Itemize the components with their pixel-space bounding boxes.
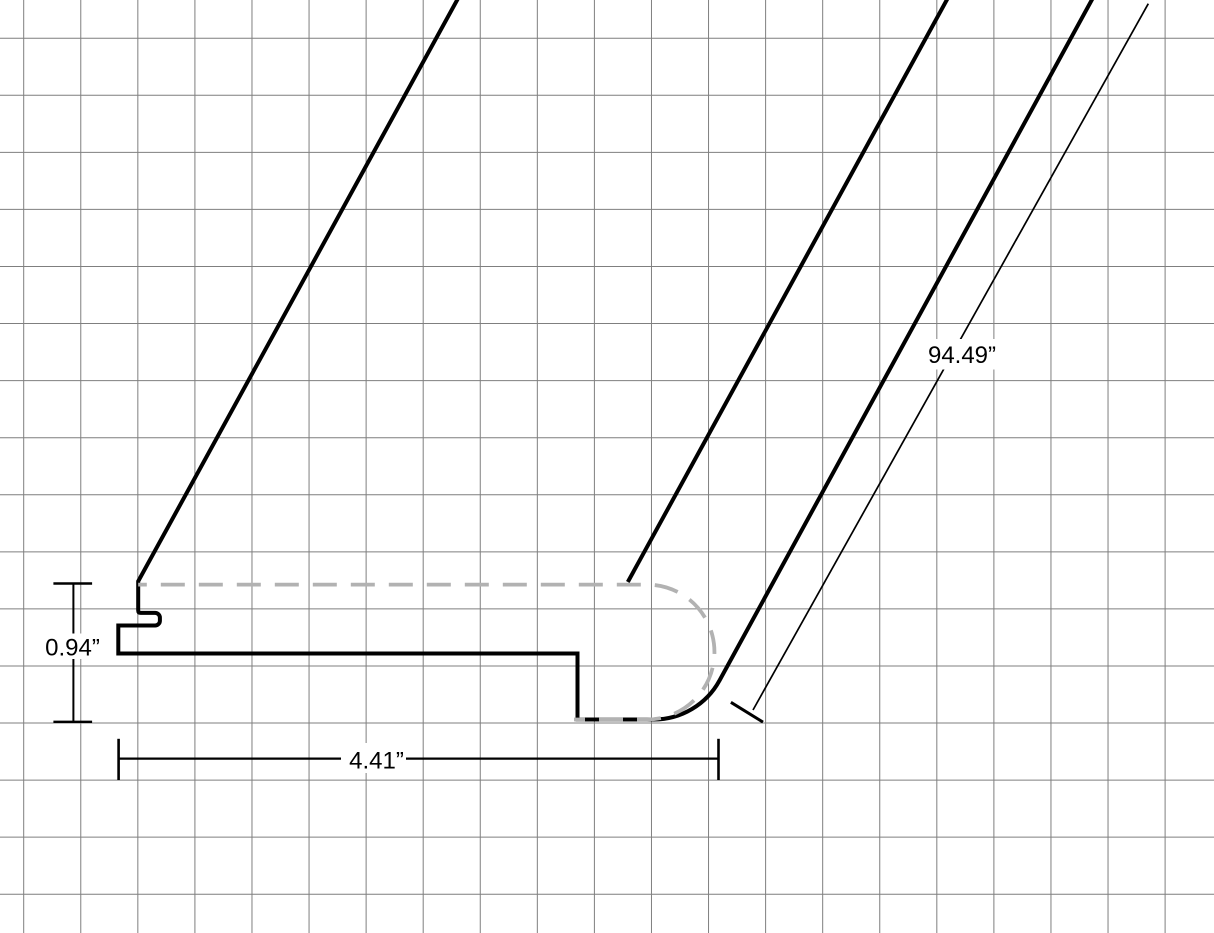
svg-text:94.49”: 94.49” [928, 342, 996, 369]
svg-text:4.41”: 4.41” [349, 748, 404, 775]
svg-text:0.94”: 0.94” [45, 635, 100, 662]
